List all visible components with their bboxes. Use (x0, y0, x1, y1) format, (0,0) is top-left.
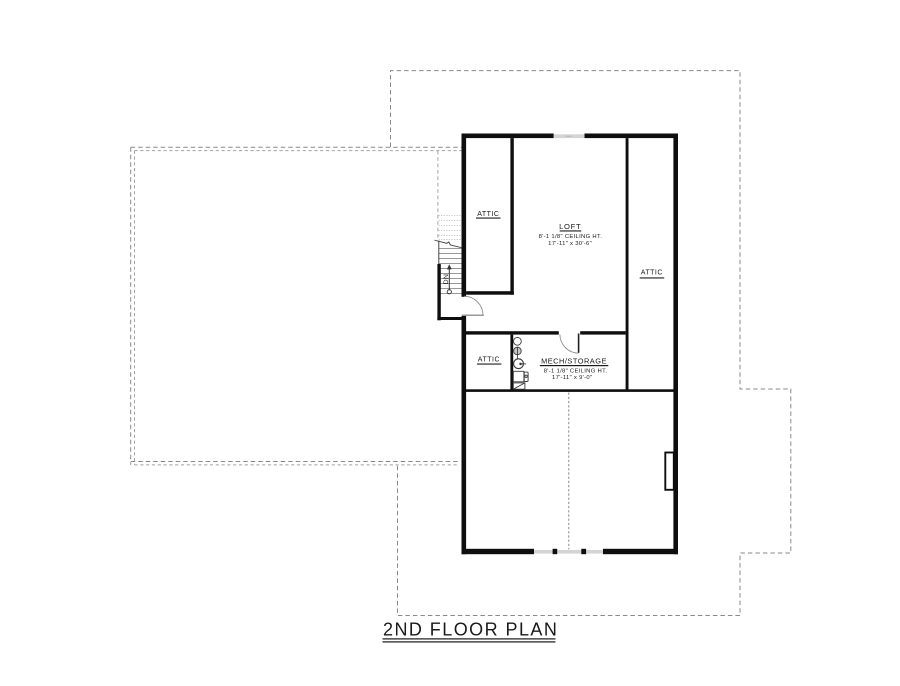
svg-text:2ND FLOOR PLAN: 2ND FLOOR PLAN (383, 620, 558, 640)
svg-text:ATTIC: ATTIC (641, 270, 663, 277)
svg-text:DN: DN (443, 274, 450, 285)
svg-text:ATTIC: ATTIC (477, 211, 499, 218)
svg-text:17'-11" x 9'-0": 17'-11" x 9'-0" (552, 375, 592, 381)
svg-text:LOFT: LOFT (559, 222, 581, 231)
svg-text:ATTIC: ATTIC (478, 357, 500, 364)
svg-text:17'-11" x 30'-6": 17'-11" x 30'-6" (548, 241, 592, 247)
svg-text:MECH/STORAGE: MECH/STORAGE (541, 356, 607, 365)
svg-text:8'-1 1/8" CEILING HT.: 8'-1 1/8" CEILING HT. (544, 368, 608, 374)
svg-text:8'-1 1/8" CEILING HT.: 8'-1 1/8" CEILING HT. (539, 234, 603, 240)
